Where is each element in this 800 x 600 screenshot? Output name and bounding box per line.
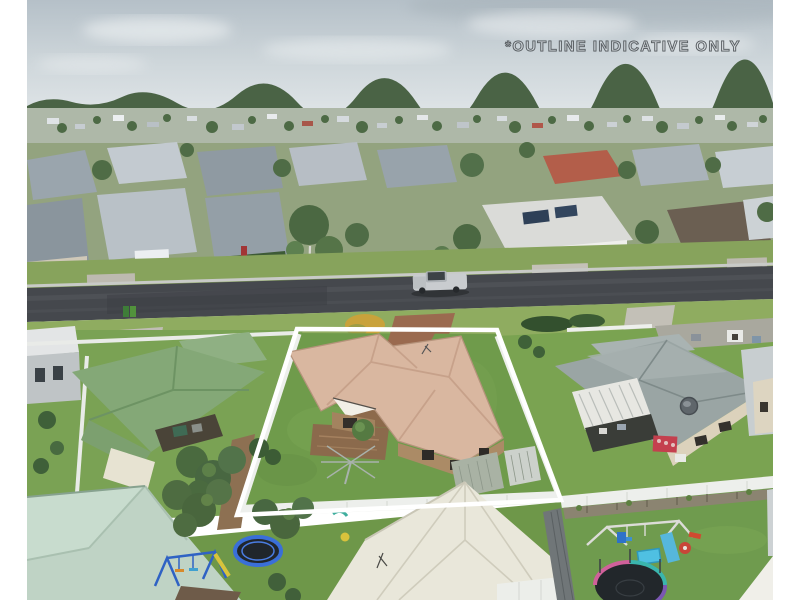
cloud <box>37 55 147 73</box>
aerial-photo: *OUTLINE INDICATIVE ONLY <box>27 0 773 600</box>
garden-shed <box>504 446 541 486</box>
wheelie-bin <box>123 306 129 317</box>
hedge <box>521 316 573 332</box>
red-front-door <box>241 246 247 256</box>
wheelie-bin <box>130 306 136 317</box>
cloud <box>82 17 232 43</box>
ac-unit <box>675 454 686 462</box>
cloud <box>262 38 452 62</box>
watermark-text: *OUTLINE INDICATIVE ONLY <box>505 39 741 55</box>
blue-bin <box>617 532 626 543</box>
photo-frame: *OUTLINE INDICATIVE ONLY <box>0 0 800 600</box>
cloud <box>467 11 637 37</box>
yellow-ball <box>341 533 350 542</box>
aerial-photo-svg: *OUTLINE INDICATIVE ONLY <box>27 0 773 600</box>
hedge <box>569 314 605 328</box>
blue-trampoline <box>235 537 281 565</box>
